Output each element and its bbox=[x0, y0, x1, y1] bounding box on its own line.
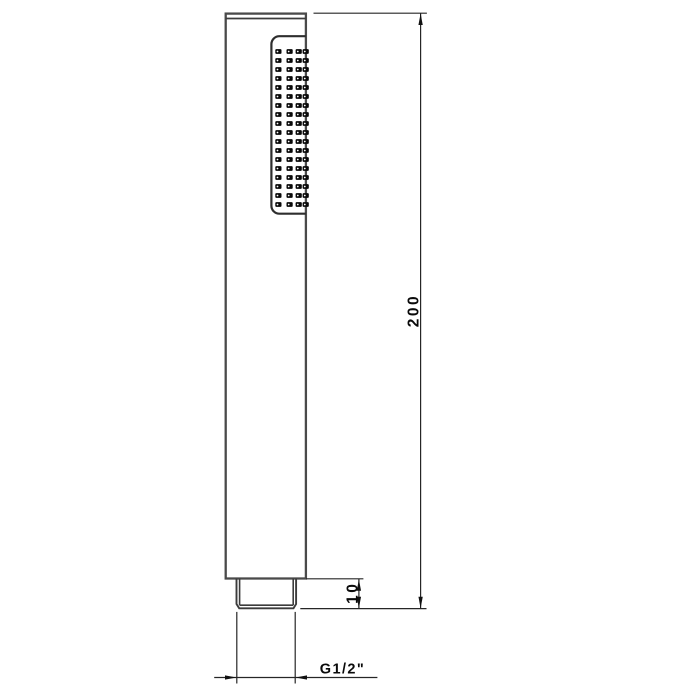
svg-text:200: 200 bbox=[406, 294, 423, 327]
svg-text:10: 10 bbox=[344, 582, 361, 604]
svg-text:G1/2": G1/2" bbox=[320, 661, 365, 677]
